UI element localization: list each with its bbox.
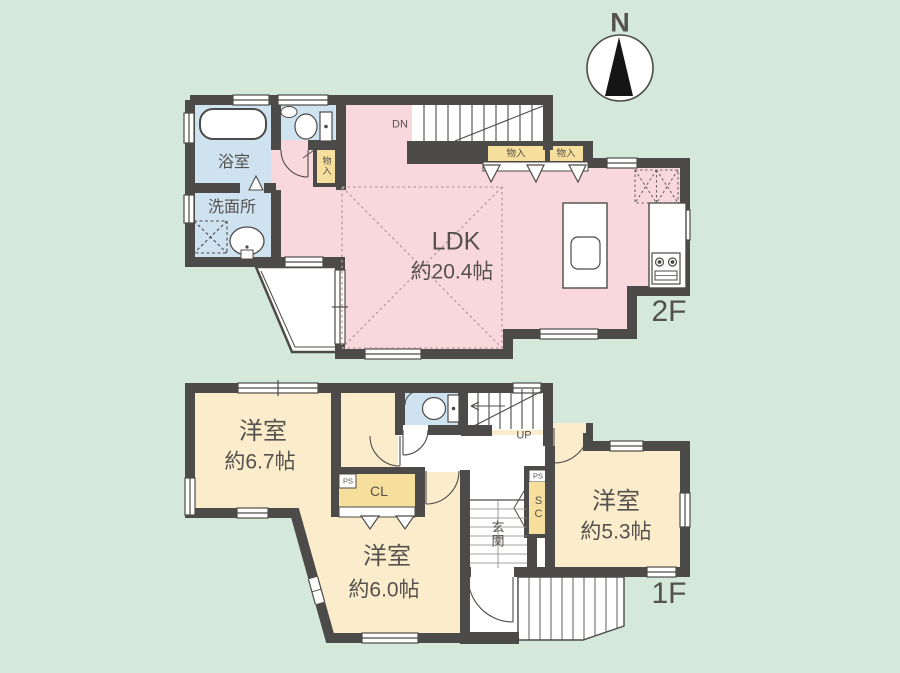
washroom-label: 洗面所 (208, 200, 256, 216)
bedroom-nw-size: 約6.7帖 (224, 452, 295, 473)
shoe-closet-label: SC (533, 495, 544, 521)
storage-left-label: 物入 (506, 149, 525, 159)
bedroom-e-size: 約5.3帖 (580, 522, 651, 543)
floor1-label: 1F (651, 579, 686, 609)
balcony (256, 267, 340, 352)
stairs-2f (412, 104, 543, 142)
bath-label: 浴室 (218, 155, 250, 171)
bedroom-nw-name: 洋室 (239, 420, 287, 444)
storage-right-label: 物入 (556, 149, 575, 159)
ldk-size-label: 約20.4帖 (411, 262, 494, 283)
compass-n-label: N (610, 10, 630, 37)
floorplan-drawing (0, 0, 900, 673)
up-label: UP (516, 431, 531, 442)
bathtub-icon (200, 109, 266, 139)
ldk-name-label: LDK (432, 230, 481, 255)
ps-label-b: PS (533, 472, 543, 480)
bedroom-s-name: 洋室 (363, 545, 411, 569)
dn-label: DN (392, 120, 408, 131)
approach-steps (518, 577, 624, 640)
ps-label-a: PS (343, 477, 353, 485)
bedroom-s-size: 約6.0帖 (348, 580, 419, 601)
floorplan-page: N 浴室 洗面所 物入 DN 物入 物入 LDK 約20.4帖 2F 洋室 約6… (0, 0, 900, 673)
hall-storage-label: 物入 (322, 156, 331, 176)
bedroom-e-name: 洋室 (592, 490, 640, 514)
compass-icon (587, 35, 653, 101)
entrance-label: 玄関 (491, 520, 504, 548)
closet-cl-label: CL (370, 484, 388, 498)
floor2-label: 2F (651, 297, 686, 327)
